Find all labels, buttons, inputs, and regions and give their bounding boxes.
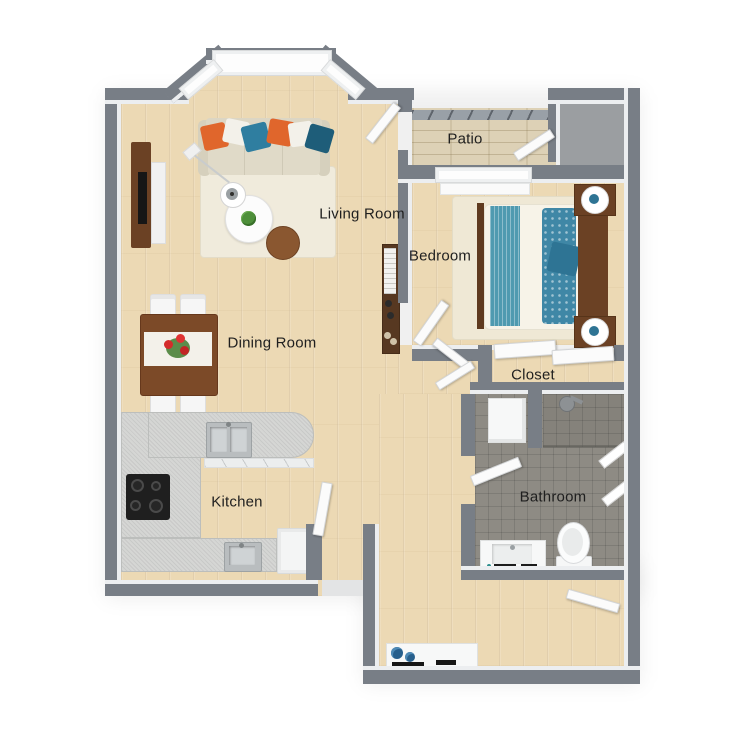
bedroom-window-sill [440, 183, 530, 195]
double-sink-basin-left [210, 427, 227, 452]
double-sink-basin-right [230, 427, 247, 452]
side-table [266, 226, 300, 260]
wall-bath-west-upper [461, 394, 475, 456]
shower-curb [543, 445, 624, 448]
floor-lamp-bulb [230, 192, 234, 196]
shower-storage-stall [488, 398, 526, 443]
kitchen-cabinet-front [204, 458, 314, 468]
table-lamp-south-finial [589, 326, 599, 336]
cooktop-burner-3 [130, 500, 141, 511]
wall-closet-east-stub [614, 345, 624, 361]
floorplan-canvas: Patio Living Room Bedroom Dining Room Cl… [0, 0, 740, 740]
bedroom-window [435, 167, 532, 183]
potted-plant [241, 211, 256, 226]
decor-bowl-1 [391, 647, 403, 659]
shower-floor [543, 394, 624, 447]
bookshelf-books [384, 248, 396, 294]
bookshelf-decor-3 [384, 332, 391, 339]
wall-closet-south [470, 382, 624, 394]
wall-living-patio-upper [398, 96, 412, 112]
patio-railing [412, 110, 553, 120]
cooktop-burner-2 [151, 481, 161, 491]
bed-headboard [578, 200, 608, 332]
room-label-living-room: Living Room [319, 206, 405, 223]
entry-console-tray-2 [436, 660, 456, 665]
table-lamp-north-finial [589, 194, 599, 204]
bookshelf-decor-4 [390, 338, 397, 345]
decor-bowl-2 [405, 652, 415, 662]
room-label-bathroom: Bathroom [520, 489, 587, 506]
tv [138, 172, 147, 224]
bed-runner [490, 206, 520, 326]
wall-east [624, 88, 640, 684]
cooktop-burner-1 [131, 479, 144, 492]
room-label-closet: Closet [511, 367, 555, 384]
wall-west [105, 88, 121, 596]
wall-shower-stall-divider [528, 390, 542, 448]
wall-bath-south [461, 566, 624, 580]
wall-entry-south [363, 666, 640, 684]
double-sink-faucet [226, 422, 231, 427]
cooktop-burner-4 [149, 499, 163, 513]
bookshelf-decor-1 [385, 300, 392, 307]
bed-footboard [477, 203, 484, 329]
bay-window-center [212, 50, 332, 76]
flower-centerpiece-red-3 [180, 346, 189, 355]
toilet-seat [562, 528, 583, 556]
media-shelf [151, 162, 166, 244]
room-label-kitchen: Kitchen [211, 494, 262, 511]
wall-entry-west [363, 524, 379, 666]
room-label-patio: Patio [447, 131, 482, 148]
flower-centerpiece-red-2 [176, 334, 185, 343]
single-sink-basin [229, 546, 255, 565]
room-label-bedroom: Bedroom [409, 248, 471, 265]
room-label-dining-room: Dining Room [228, 335, 317, 352]
vanity-faucet [510, 545, 515, 550]
single-sink-faucet [239, 543, 244, 548]
bookshelf-decor-2 [387, 312, 394, 319]
bed-throw-pillow [546, 241, 582, 277]
patio-storage-floor [560, 104, 624, 167]
kitchen-doorway-threshold [322, 580, 363, 596]
flower-centerpiece-red-1 [164, 340, 173, 349]
wall-bedroom-west [398, 183, 412, 303]
wall-kitchen-south [105, 580, 318, 596]
